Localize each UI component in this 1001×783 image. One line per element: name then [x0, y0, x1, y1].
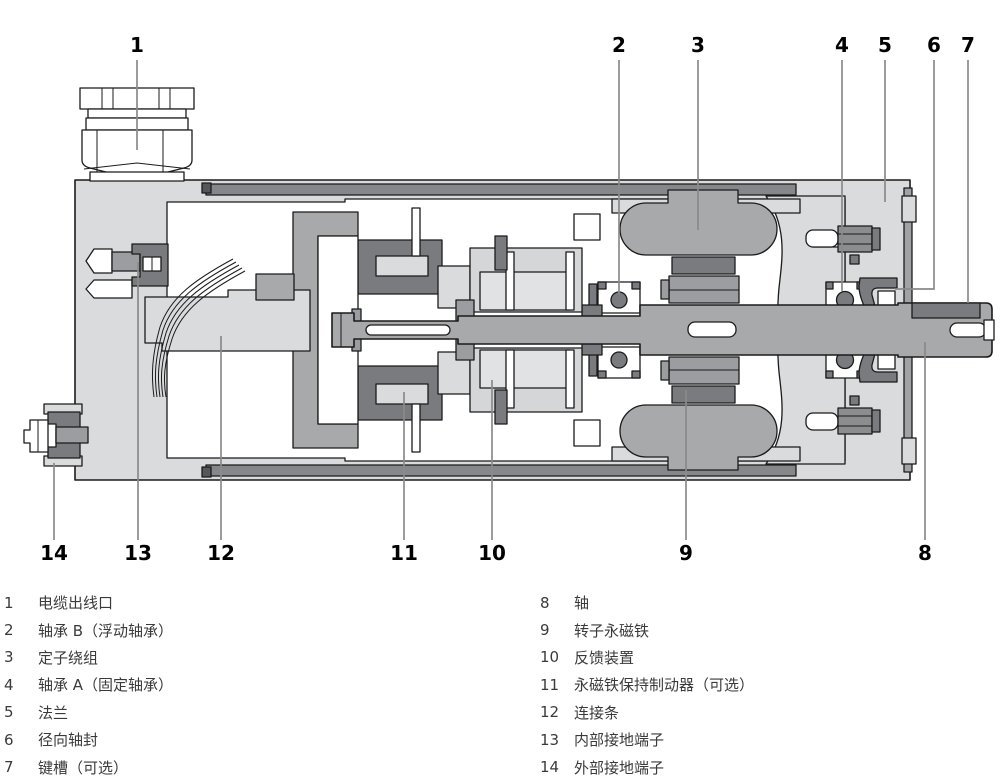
legend-row-3: 3定子绕组 — [4, 644, 504, 671]
legend-row-9: 9转子永磁铁 — [540, 616, 996, 643]
legend-item-text: 外部接地端子 — [574, 757, 664, 778]
legend-item-text: 轴 — [574, 592, 589, 613]
callout-number-2: 2 — [612, 33, 626, 57]
keyway — [912, 303, 980, 318]
callout-number-12: 12 — [207, 541, 235, 565]
legend-item-number: 10 — [540, 648, 574, 666]
legend-item-text: 永磁铁保持制动器（可选） — [574, 674, 754, 695]
callout-number-11: 11 — [390, 541, 418, 565]
legend-item-number: 1 — [4, 594, 38, 612]
legend-item-text: 径向轴封 — [38, 729, 98, 750]
legend-row-8: 8轴 — [540, 589, 996, 616]
legend-left-column: 1电缆出线口2轴承 B（浮动轴承）3定子绕组4轴承 A（固定轴承）5法兰6径向轴… — [4, 589, 504, 781]
legend-item-text: 电缆出线口 — [38, 592, 113, 613]
legend-item-number: 4 — [4, 676, 38, 694]
external-ground-terminal — [24, 404, 88, 466]
figure-canvas: 1234567891011121314 1电缆出线口2轴承 B（浮动轴承）3定子… — [0, 0, 1001, 783]
callout-number-4: 4 — [835, 33, 849, 57]
legend-item-text: 轴承 B（浮动轴承） — [38, 620, 173, 641]
legend-item-text: 转子永磁铁 — [574, 620, 649, 641]
callout-number-14: 14 — [40, 541, 68, 565]
legend-item-text: 定子绕组 — [38, 647, 98, 668]
legend-item-number: 5 — [4, 703, 38, 721]
callout-number-3: 3 — [691, 33, 705, 57]
shaft-end-slot — [950, 323, 986, 337]
legend-row-6: 6径向轴封 — [4, 726, 504, 753]
legend-item-number: 11 — [540, 676, 574, 694]
rotor-core — [661, 276, 739, 303]
legend-row-14: 14外部接地端子 — [540, 753, 996, 780]
legend-item-number: 6 — [4, 731, 38, 749]
rotor-key-slot — [688, 322, 736, 337]
callout-number-9: 9 — [679, 541, 693, 565]
legend-row-5: 5法兰 — [4, 699, 504, 726]
callout-number-5: 5 — [878, 33, 892, 57]
callout-number-1: 1 — [130, 33, 144, 57]
rotor-magnet — [672, 257, 735, 274]
legend-row-7: 7键槽（可选） — [4, 753, 504, 780]
callout-number-7: 7 — [961, 33, 975, 57]
legend-right-column: 8轴9转子永磁铁10反馈装置11永磁铁保持制动器（可选）12连接条13内部接地端… — [540, 589, 996, 781]
shaft-tie-rod-slot — [366, 325, 450, 335]
legend-item-text: 内部接地端子 — [574, 729, 664, 750]
legend-item-number: 8 — [540, 594, 574, 612]
legend-item-text: 法兰 — [38, 702, 68, 723]
legend-row-12: 12连接条 — [540, 699, 996, 726]
legend-item-number: 3 — [4, 648, 38, 666]
feedback-device — [470, 236, 582, 312]
legend-item-number: 2 — [4, 621, 38, 639]
legend-item-number: 14 — [540, 758, 574, 776]
legend-row-13: 13内部接地端子 — [540, 726, 996, 753]
legend-item-number: 9 — [540, 621, 574, 639]
legend-item-text: 轴承 A（固定轴承） — [38, 674, 173, 695]
legend-item-number: 13 — [540, 731, 574, 749]
legend-item-text: 键槽（可选） — [38, 757, 128, 778]
legend-row-4: 4轴承 A（固定轴承） — [4, 671, 504, 698]
flange-step-top — [902, 196, 916, 222]
legend-item-number: 7 — [4, 758, 38, 776]
legend-row-2: 2轴承 B（浮动轴承） — [4, 616, 504, 643]
legend-item-text: 反馈装置 — [574, 647, 634, 668]
callout-number-8: 8 — [918, 541, 932, 565]
flange-step-bottom — [902, 438, 916, 464]
callout-number-13: 13 — [124, 541, 152, 565]
callout-number-10: 10 — [478, 541, 506, 565]
legend-row-10: 10反馈装置 — [540, 644, 996, 671]
callout-number-6: 6 — [927, 33, 941, 57]
spacer-block — [574, 214, 600, 240]
shaft-end-hex — [984, 320, 994, 340]
legend-row-11: 11永磁铁保持制动器（可选） — [540, 671, 996, 698]
legend-item-text: 连接条 — [574, 702, 619, 723]
legend-row-1: 1电缆出线口 — [4, 589, 504, 616]
legend-item-number: 12 — [540, 703, 574, 721]
